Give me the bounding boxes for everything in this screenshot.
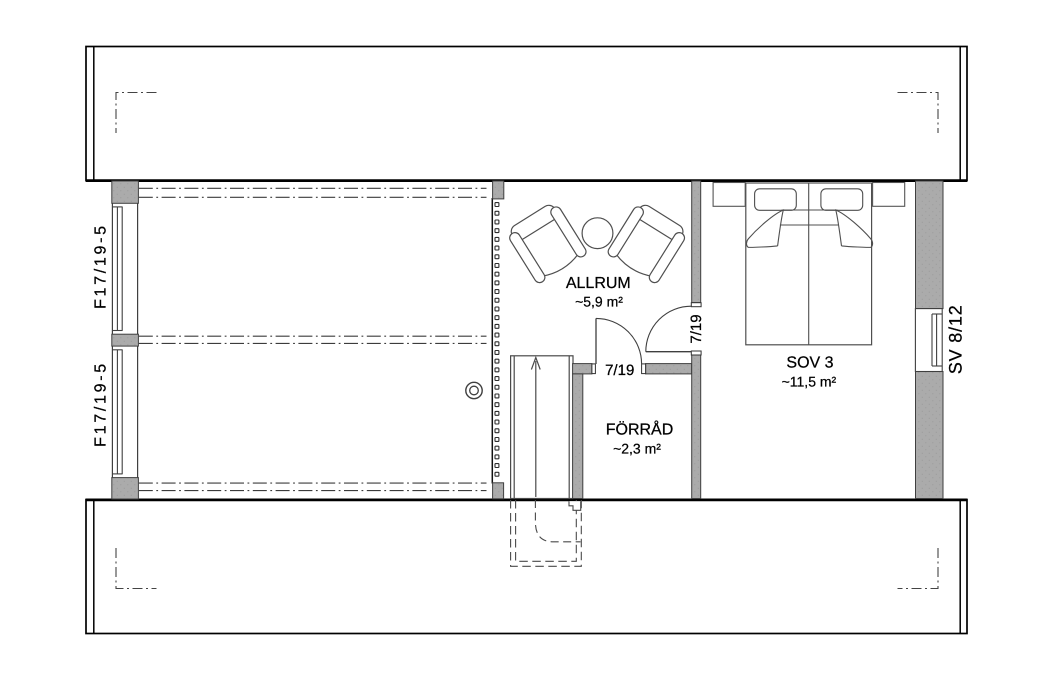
- svg-text:7/19: 7/19: [688, 314, 705, 343]
- svg-text:~11,5 m²: ~11,5 m²: [782, 374, 837, 390]
- svg-text:~2,3 m²: ~2,3 m²: [613, 440, 661, 456]
- svg-text:~5,9 m²: ~5,9 m²: [575, 293, 623, 309]
- svg-text:F17/19-5: F17/19-5: [93, 361, 110, 447]
- svg-text:F17/19-5: F17/19-5: [93, 223, 110, 309]
- svg-text:7/19: 7/19: [605, 362, 634, 379]
- svg-text:ALLRUM: ALLRUM: [566, 275, 631, 292]
- svg-text:SV 8/12: SV 8/12: [946, 304, 966, 374]
- svg-text:SOV 3: SOV 3: [786, 355, 833, 372]
- svg-text:FÖRRÅD: FÖRRÅD: [606, 421, 674, 439]
